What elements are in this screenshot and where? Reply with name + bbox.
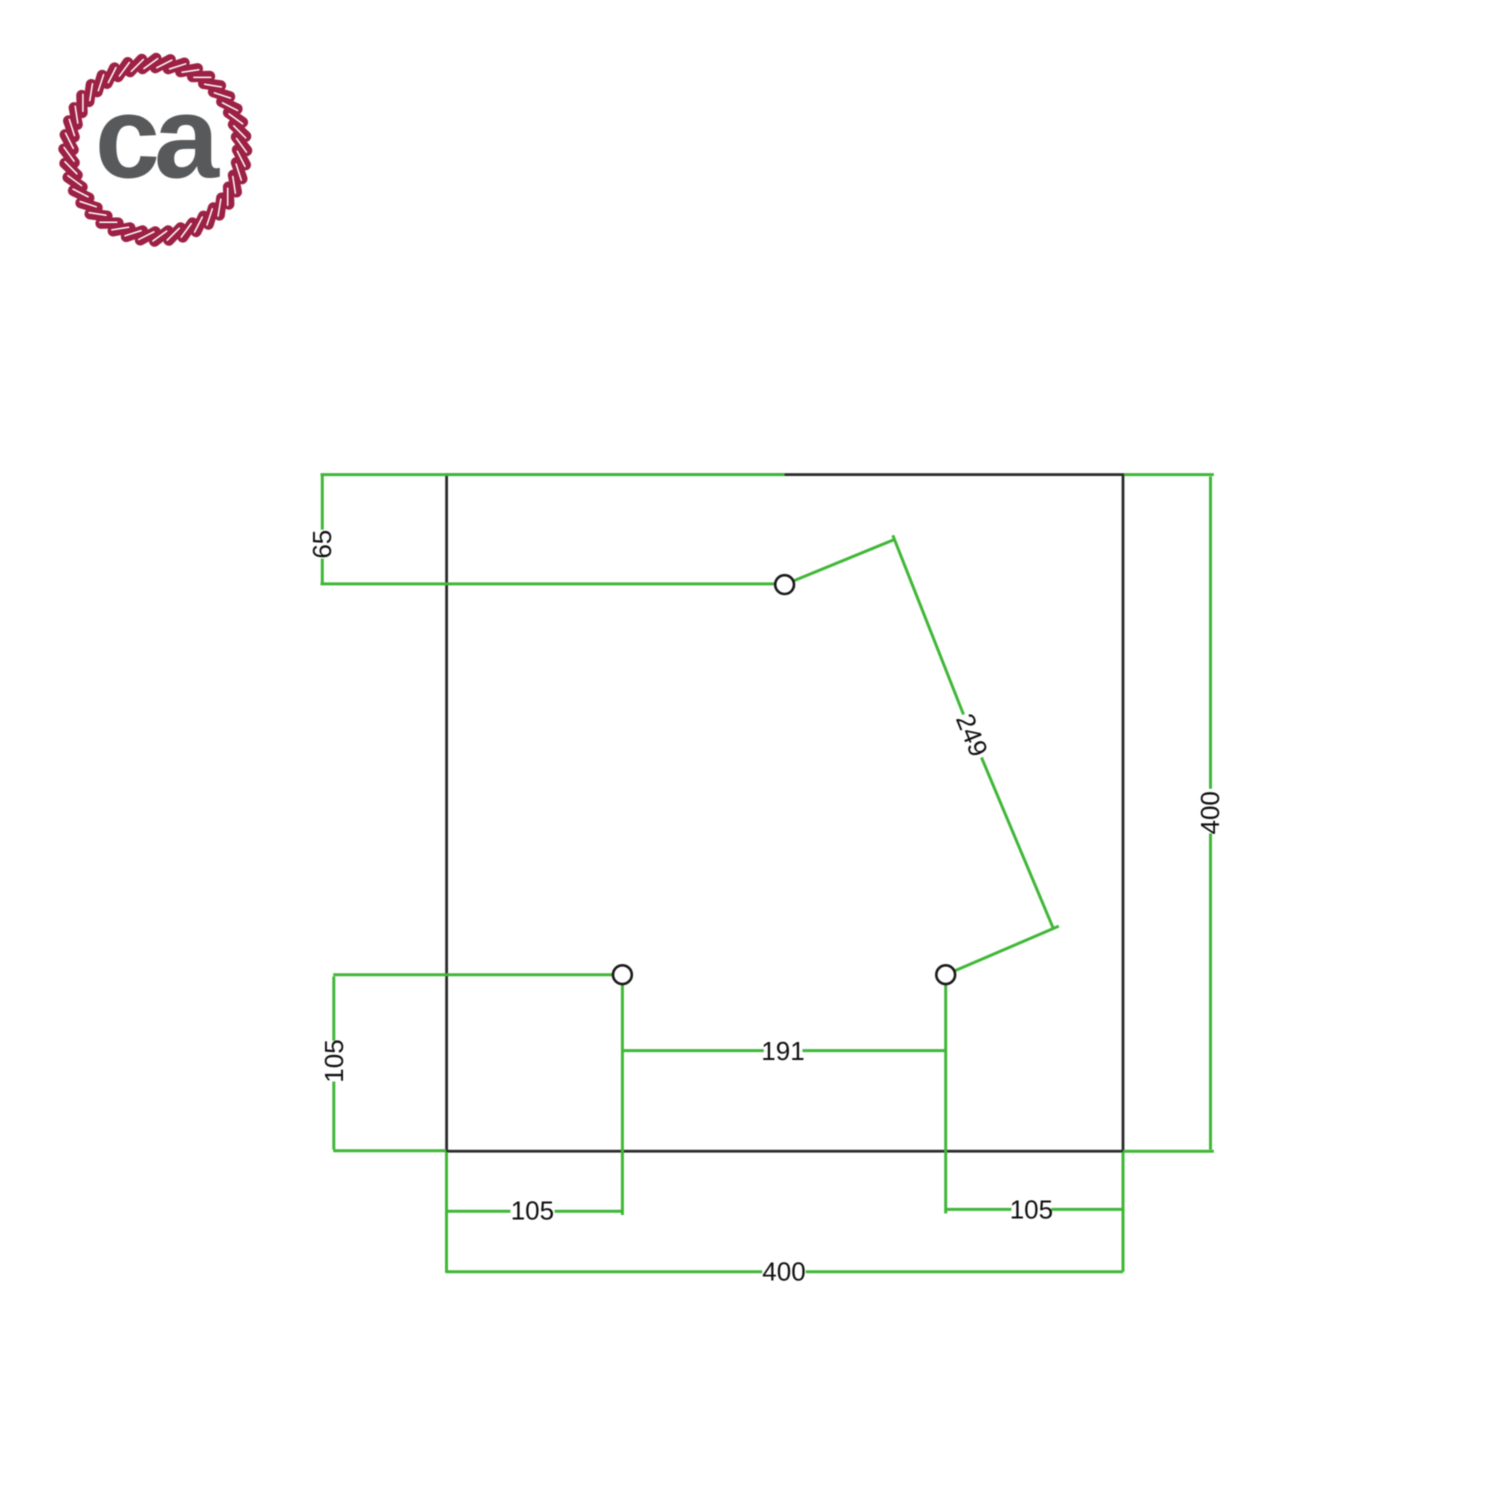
svg-text:ca: ca: [95, 72, 220, 203]
svg-text:105: 105: [1010, 1195, 1053, 1225]
svg-text:65: 65: [307, 530, 337, 559]
svg-text:400: 400: [762, 1256, 805, 1286]
svg-text:105: 105: [319, 1039, 349, 1082]
svg-text:105: 105: [511, 1196, 554, 1226]
svg-text:191: 191: [761, 1036, 804, 1066]
svg-text:249: 249: [950, 709, 994, 761]
svg-text:400: 400: [1195, 791, 1225, 834]
